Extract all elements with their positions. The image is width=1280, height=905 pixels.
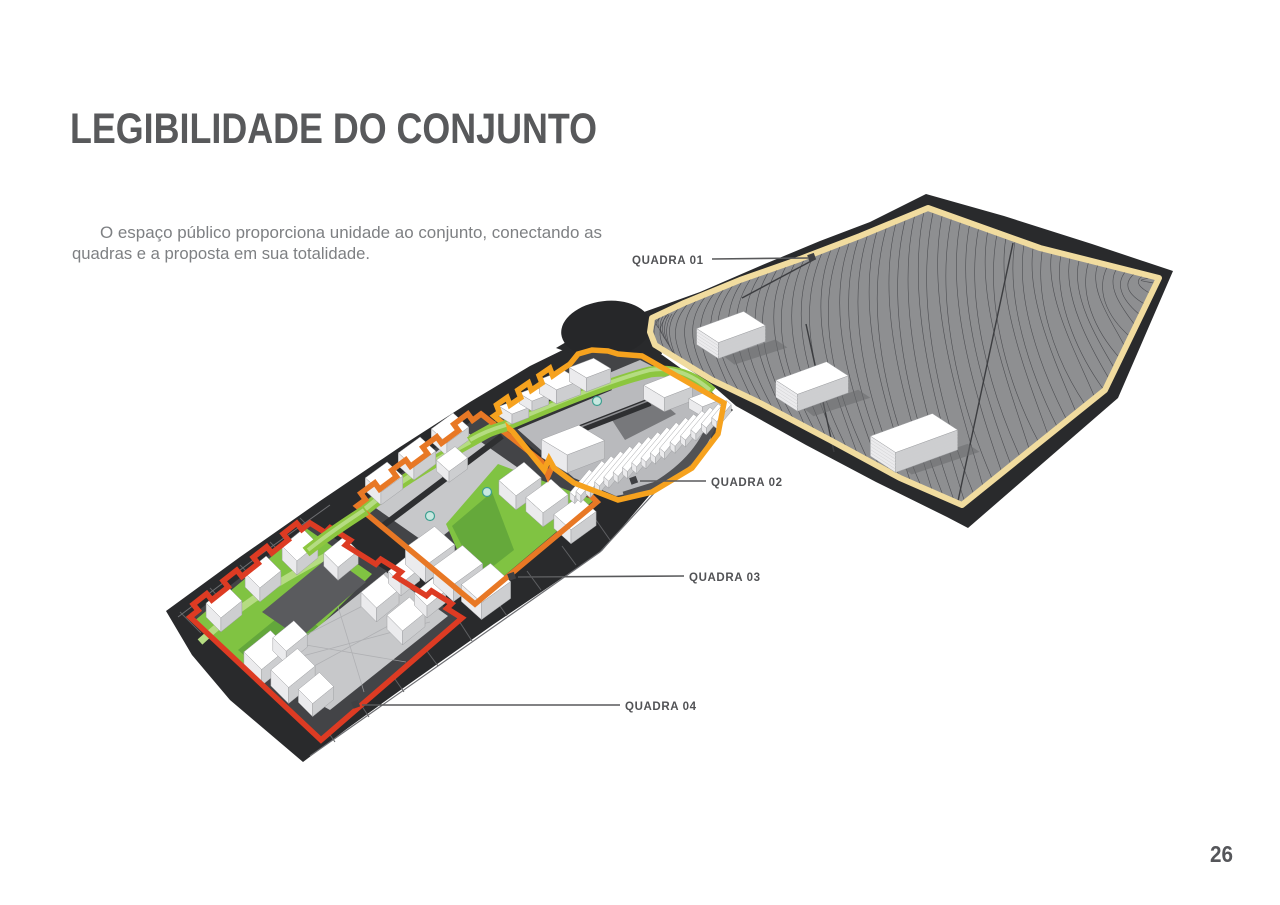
svg-text:QUADRA 01: QUADRA 01 (632, 255, 704, 267)
svg-text:QUADRA 04: QUADRA 04 (625, 701, 697, 713)
svg-text:26: 26 (1210, 841, 1233, 867)
svg-text:quadras e a proposta em sua to: quadras e a proposta em sua totalidade. (72, 245, 370, 263)
svg-text:QUADRA 02: QUADRA 02 (711, 477, 783, 489)
svg-text:QUADRA 03: QUADRA 03 (689, 572, 761, 584)
svg-text:LEGIBILIDADE DO CONJUNTO: LEGIBILIDADE DO CONJUNTO (70, 105, 597, 153)
svg-text:O espaço público proporciona u: O espaço público proporciona unidade ao … (100, 224, 602, 242)
